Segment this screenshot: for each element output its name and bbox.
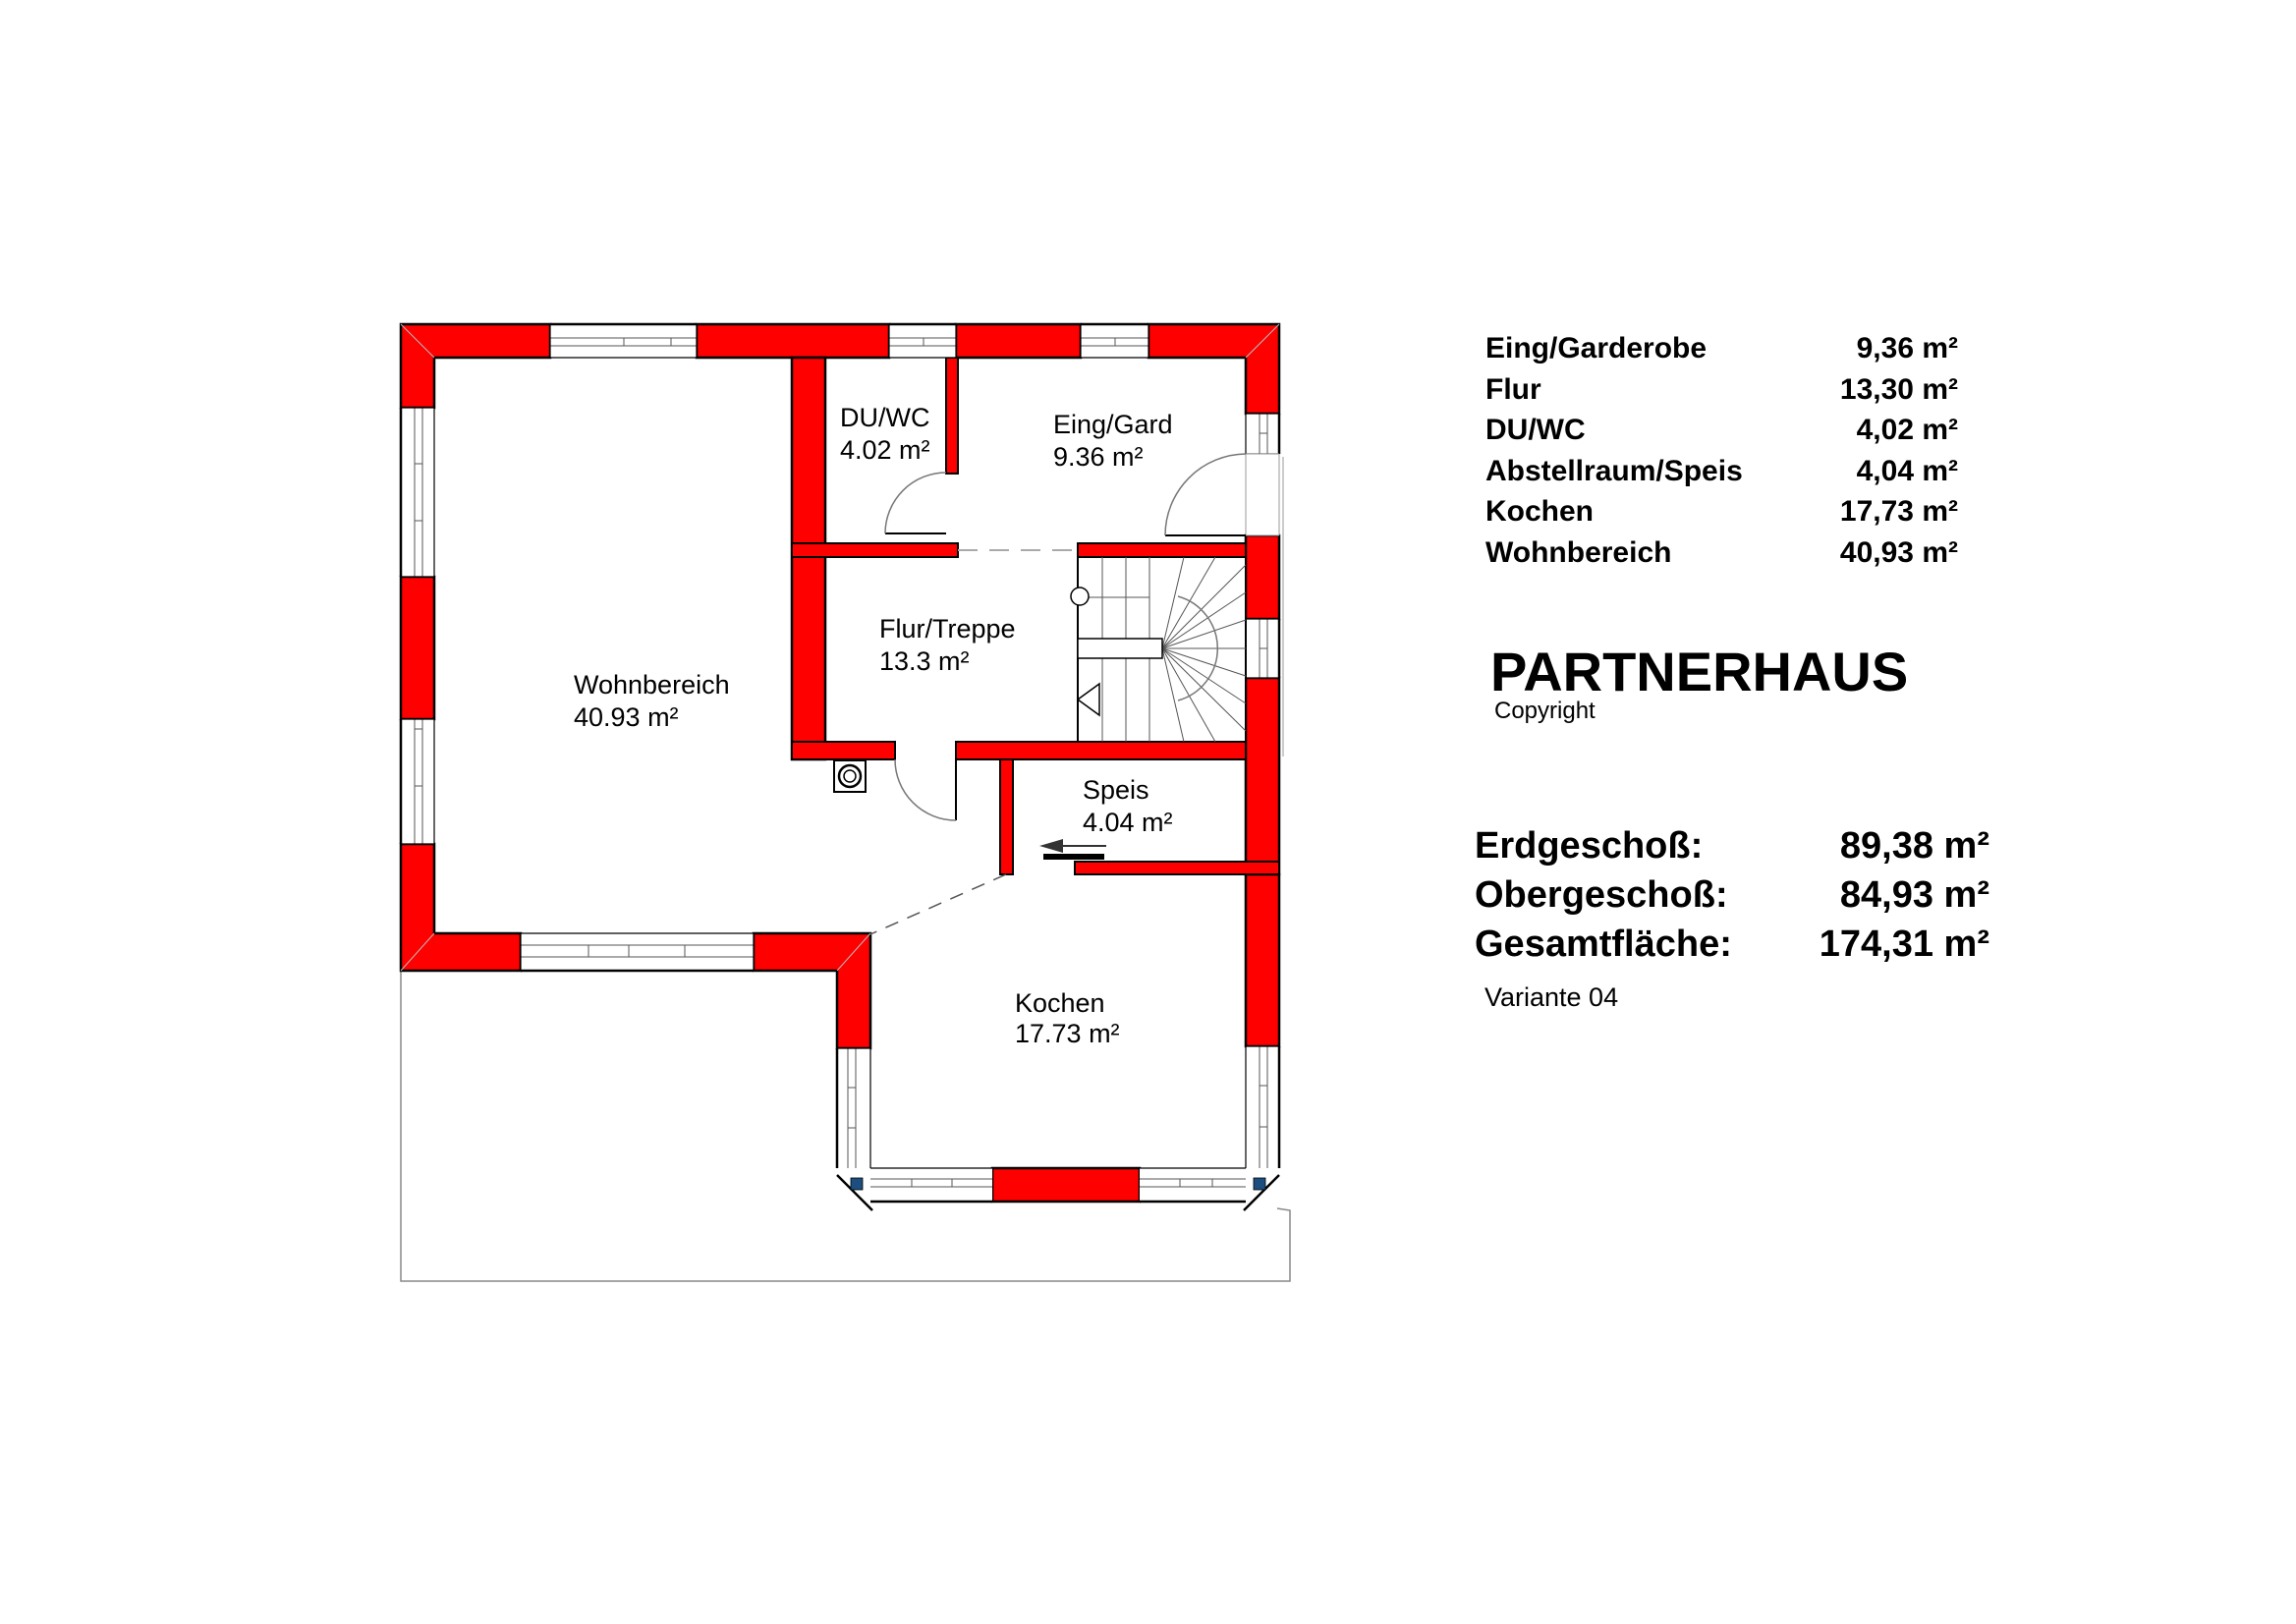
window [1140,1168,1246,1202]
room-label-duwc: DU/WC [840,403,929,432]
window [1246,1046,1279,1168]
room-legend: Eing/Garderobe 9,36 m² Flur 13,30 m² DU/… [1485,328,1958,573]
flur-wohnbereich-door [895,759,956,820]
wall-flur-bottom-left [792,742,895,759]
wall-duwc-flur [792,543,958,557]
legend-value: 40,93 m² [1840,532,1958,574]
wall-flur-bottom-right [956,742,1246,759]
summary-row: Erdgeschoß: 89,38 m² [1475,821,1989,870]
room-label-eing: Eing/Gard [1053,410,1173,439]
window [550,324,697,358]
summary-label: Gesamtfläche: [1475,920,1732,969]
summary-row: Obergeschoß: 84,93 m² [1475,870,1989,920]
entry-door [1165,454,1279,535]
window [521,933,754,971]
summary-value: 174,31 m² [1820,920,1989,969]
bay-post-right [1254,1178,1265,1190]
room-area-speis: 4.04 m² [1083,808,1173,837]
legend-row: DU/WC 4,02 m² [1485,410,1958,451]
legend-label: Flur [1485,369,1541,411]
legend-row: Kochen 17,73 m² [1485,491,1958,532]
summary-value: 89,38 m² [1840,821,1989,870]
wall-left-mid [401,577,434,719]
floorplan-drawing: Wohnbereich 40.93 m² DU/WC 4.02 m² Eing/… [0,0,2296,1624]
wall-right-mid [1246,678,1279,874]
window [401,408,434,577]
window [401,719,434,844]
wall-corner-bottom-left [401,844,521,971]
summary-label: Erdgeschoß: [1475,821,1703,870]
variant-label: Variante 04 [1484,982,1618,1013]
legend-value: 4,02 m² [1857,410,1958,451]
wall-stair-top [1078,543,1246,557]
bay-post-left [851,1178,863,1190]
cellar-step-marker [1039,839,1106,857]
wall-bay-bottom [992,1168,1140,1202]
room-label-speis: Speis [1083,775,1149,805]
room-label-flur: Flur/Treppe [879,614,1016,644]
window [837,1048,870,1168]
brand-copyright: Copyright [1494,700,1596,723]
room-area-duwc: 4.02 m² [840,435,930,465]
wall-corner-top-right [1148,324,1279,414]
legend-value: 13,30 m² [1840,369,1958,411]
window [1081,324,1148,358]
room-label-kochen: Kochen [1015,988,1105,1018]
window [1246,619,1279,678]
wall-wohn-flur [792,358,825,759]
open-boundary-wohn-kochen [870,874,1006,934]
legend-row: Wohnbereich 40,93 m² [1485,532,1958,574]
legend-label: Eing/Garderobe [1485,328,1707,369]
legend-value: 17,73 m² [1840,491,1958,532]
room-area-eing: 9.36 m² [1053,442,1144,472]
wall-top-pier-2 [956,324,1081,358]
wall-duwc-eing [946,358,958,474]
floorplan-page: Wohnbereich 40.93 m² DU/WC 4.02 m² Eing/… [0,0,2296,1624]
legend-value: 4,04 m² [1857,451,1958,492]
staircase [1071,557,1246,742]
legend-row: Abstellraum/Speis 4,04 m² [1485,451,1958,492]
legend-value: 9,36 m² [1857,328,1958,369]
window [889,324,956,358]
wall-top-pier-1 [697,324,889,358]
wall-right-entry-pier [1246,535,1279,619]
legend-label: Kochen [1485,491,1594,532]
room-label-wohnbereich: Wohnbereich [574,670,730,700]
wall-right-kitchen [1246,874,1279,1046]
wall-corner-top-left [401,324,550,408]
legend-label: Abstellraum/Speis [1485,451,1743,492]
summary-row: Gesamtfläche: 174,31 m² [1475,920,1989,969]
legend-label: DU/WC [1485,410,1586,451]
duwc-door [885,473,946,533]
room-area-wohnbereich: 40.93 m² [574,702,679,732]
room-area-kochen: 17.73 m² [1015,1019,1120,1048]
room-area-flur: 13.3 m² [879,646,970,676]
stair-start-circle [1071,588,1089,605]
area-summary: Erdgeschoß: 89,38 m² Obergeschoß: 84,93 … [1475,821,1989,969]
legend-row: Eing/Garderobe 9,36 m² [1485,328,1958,369]
summary-label: Obergeschoß: [1475,870,1728,920]
chimney-symbol [834,760,866,792]
brand-title: PARTNERHAUS [1490,644,1908,700]
wall-speis-left [1000,759,1013,874]
wall-speis-bottom [1075,862,1279,874]
window [1246,414,1279,454]
summary-value: 84,93 m² [1840,870,1989,920]
window [870,1168,992,1202]
stair-landing [1078,639,1162,658]
legend-row: Flur 13,30 m² [1485,369,1958,411]
legend-label: Wohnbereich [1485,532,1671,574]
wall-bottom-right-el [754,933,870,1048]
